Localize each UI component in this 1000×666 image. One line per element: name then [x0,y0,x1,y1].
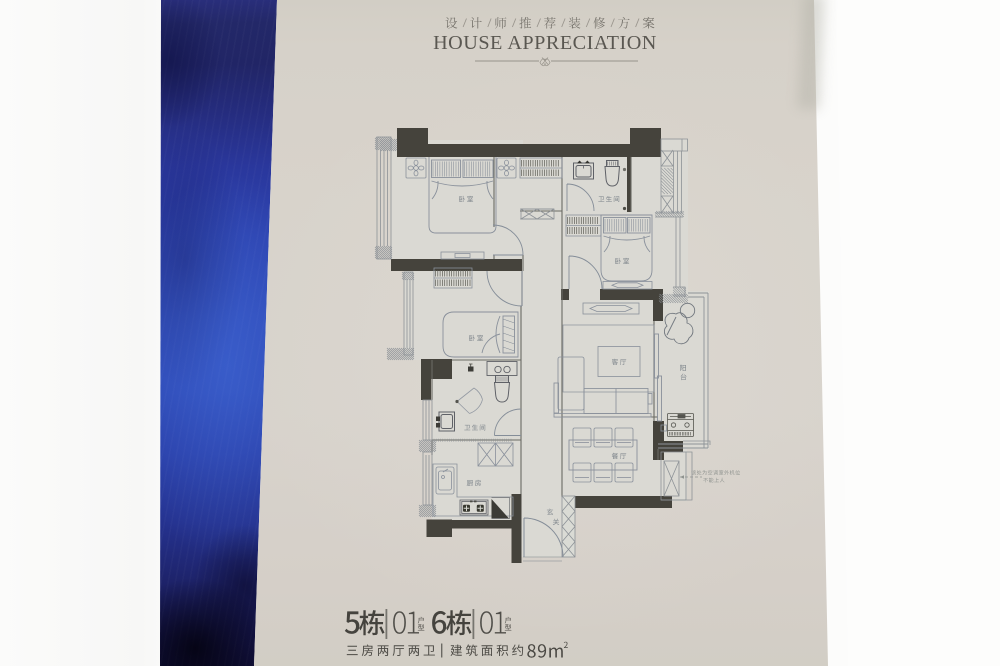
svg-text:HOUSE APPRECIATION: HOUSE APPRECIATION [433,32,657,54]
